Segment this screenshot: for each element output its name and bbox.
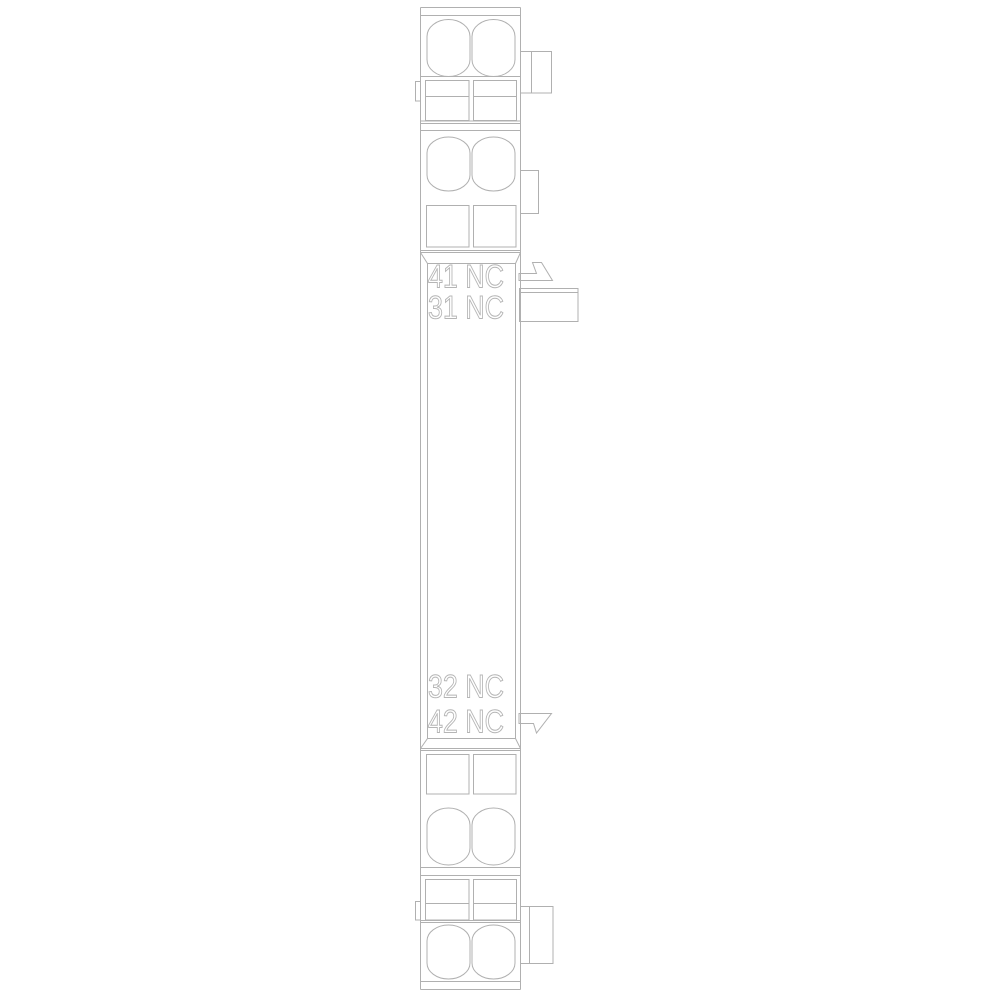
housing-outline bbox=[416, 8, 521, 990]
wire-opening bbox=[427, 206, 470, 248]
screw-terminal bbox=[472, 137, 515, 191]
auxiliary-contact-block-drawing: 41 NC 31 NC 32 NC 42 NC bbox=[0, 0, 1000, 1000]
din-rail-notch-bottom bbox=[416, 902, 421, 921]
arrow-right-icon bbox=[519, 263, 553, 281]
screw-terminal bbox=[472, 808, 515, 865]
arrow-right-icon bbox=[519, 714, 552, 734]
screw-terminal bbox=[427, 808, 470, 865]
mounting-tab-middle bbox=[520, 289, 579, 322]
terminal-label-42nc: 42 NC bbox=[428, 704, 504, 740]
screw-terminal bbox=[472, 925, 515, 979]
screw-terminal bbox=[427, 19, 470, 76]
screw-terminal bbox=[427, 137, 470, 191]
screw-terminals bbox=[427, 19, 515, 979]
direction-arrows bbox=[519, 263, 553, 734]
mounting-tabs bbox=[520, 52, 579, 964]
terminal-labels: 41 NC 31 NC 32 NC 42 NC bbox=[428, 259, 504, 740]
panel-bevel bbox=[516, 739, 521, 749]
screw-terminal bbox=[472, 19, 515, 76]
terminal-clamp bbox=[426, 880, 470, 921]
terminal-label-32nc: 32 NC bbox=[428, 669, 504, 705]
terminal-label-31nc: 31 NC bbox=[428, 290, 504, 326]
panel-bevel bbox=[516, 253, 521, 264]
screw-terminal bbox=[427, 925, 470, 979]
wire-opening bbox=[474, 206, 517, 248]
mounting-tab-top bbox=[521, 52, 552, 94]
panel-bevel bbox=[421, 739, 428, 749]
technical-drawing-canvas: 41 NC 31 NC 32 NC 42 NC bbox=[0, 0, 1000, 1000]
wire-opening bbox=[427, 755, 470, 795]
terminal-clamp bbox=[474, 880, 517, 921]
terminal-clamp bbox=[474, 81, 517, 121]
mounting-tab-bottom bbox=[521, 907, 554, 964]
mounting-tab-upper bbox=[521, 171, 539, 214]
terminal-clamp bbox=[426, 81, 470, 121]
panel-bevel bbox=[421, 253, 428, 264]
din-rail-notch-top bbox=[416, 82, 421, 102]
wire-opening bbox=[474, 755, 517, 795]
